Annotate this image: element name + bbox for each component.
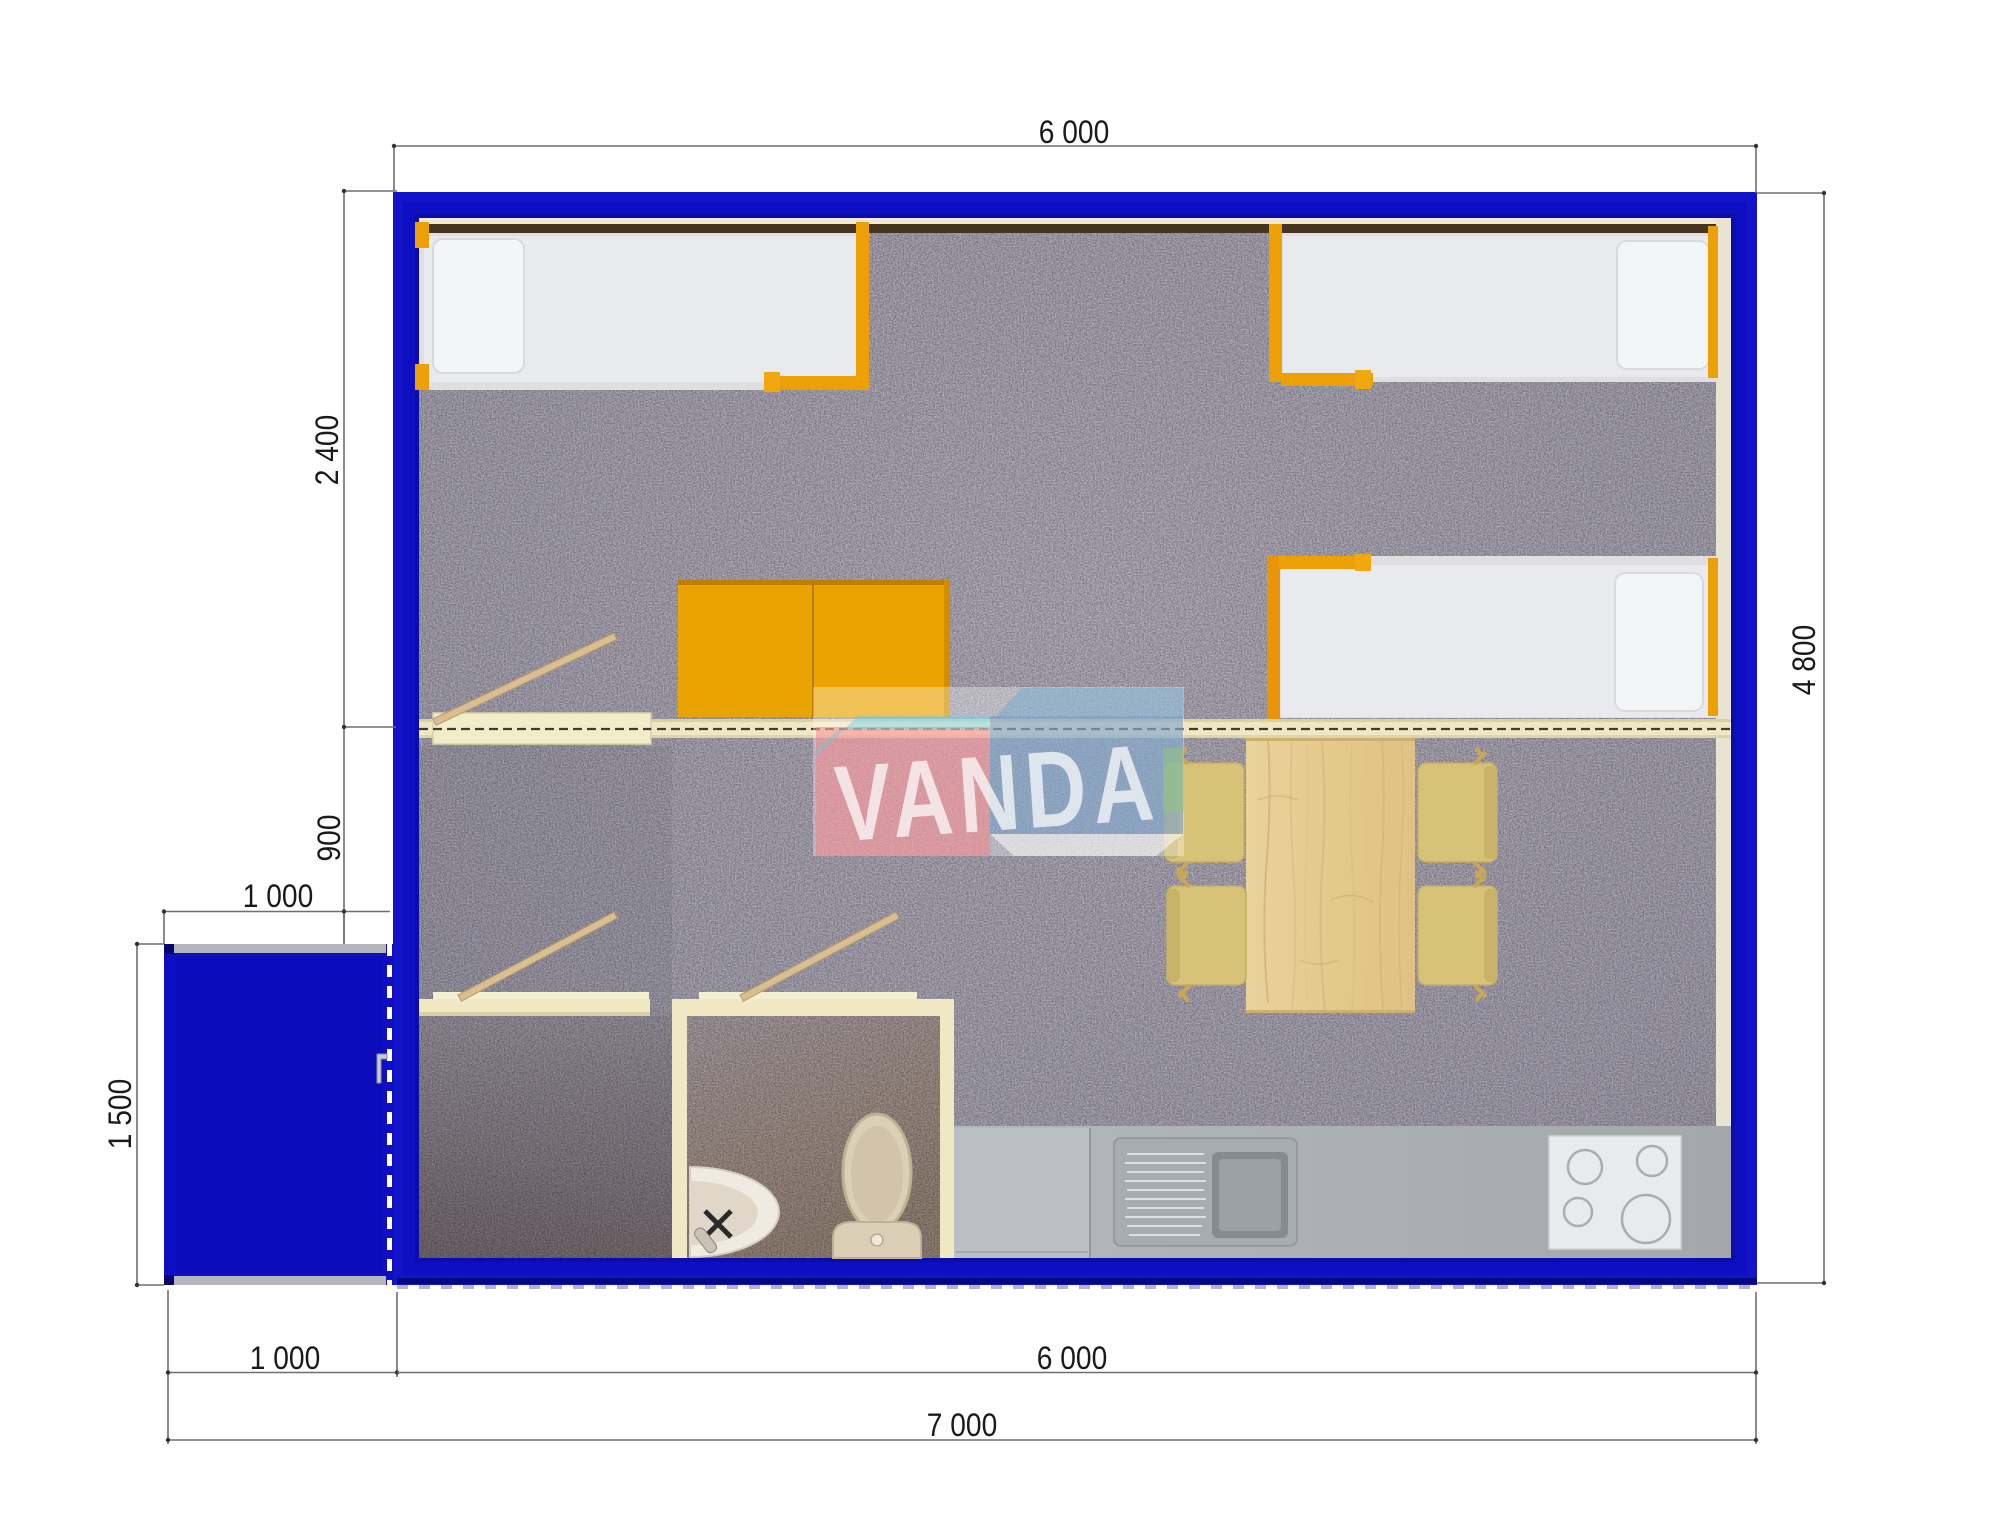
svg-text:1 000: 1 000 xyxy=(243,879,313,914)
svg-text:1 000: 1 000 xyxy=(250,1341,320,1376)
svg-text:VANDA: VANDA xyxy=(831,721,1163,865)
svg-text:4 800: 4 800 xyxy=(1787,625,1822,695)
svg-text:900: 900 xyxy=(312,815,347,862)
svg-text:6 000: 6 000 xyxy=(1039,115,1109,150)
svg-text:1 500: 1 500 xyxy=(103,1079,138,1149)
svg-text:7 000: 7 000 xyxy=(927,1408,997,1443)
svg-text:6 000: 6 000 xyxy=(1037,1341,1107,1376)
svg-text:2 400: 2 400 xyxy=(310,415,345,485)
